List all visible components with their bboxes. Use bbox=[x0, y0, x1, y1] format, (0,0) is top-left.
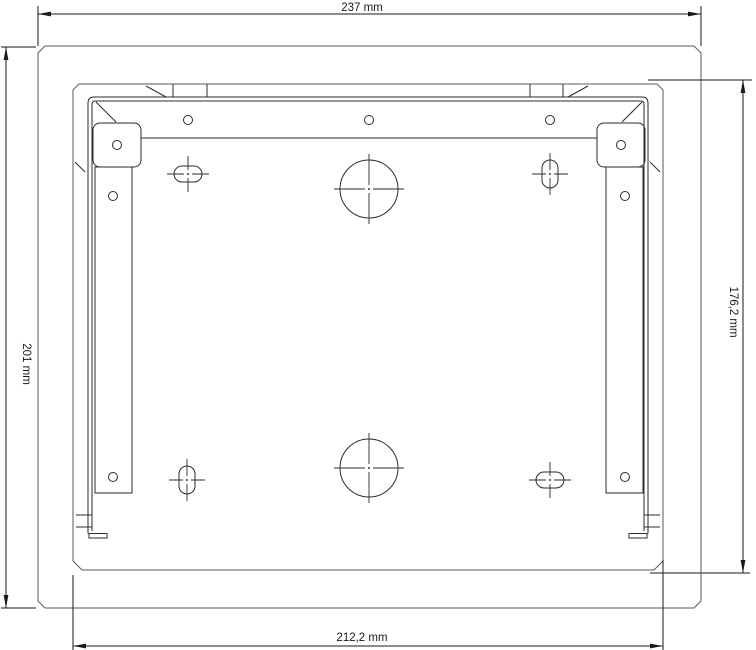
technical-drawing: 237 mm 201 mm 176,2 mm 212,2 mm bbox=[0, 0, 756, 650]
dim-label-overall-height: 201 mm bbox=[20, 343, 32, 385]
dim-label-inner-width: 212,2 mm bbox=[336, 632, 387, 644]
dim-label-inner-height: 176,2 mm bbox=[727, 286, 739, 337]
dim-label-overall-width: 237 mm bbox=[341, 2, 383, 14]
